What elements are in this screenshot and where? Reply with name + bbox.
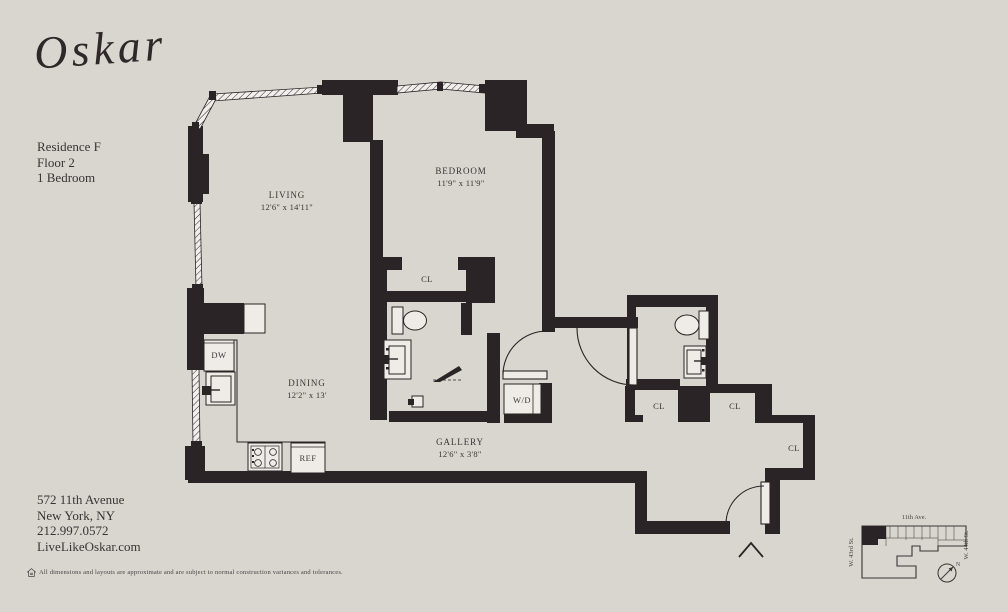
doors (433, 328, 770, 524)
keyplan-street-left-label: W. 43rd St. (848, 537, 855, 567)
washer-dryer-label: W/D (513, 395, 531, 405)
windows (192, 82, 485, 446)
gallery-label: GALLERY (436, 437, 484, 447)
kitchen-sink-icon (202, 372, 235, 405)
dishwasher-label: DW (211, 350, 226, 360)
keyplan-street-right-label: W. 44th St. (963, 530, 970, 559)
entry-chevron-icon (739, 543, 763, 557)
closet-label: CL (653, 401, 665, 411)
bedroom-dims: 11'9" x 11'9" (437, 178, 484, 188)
keyplan-avenue-label: 11th Ave. (902, 514, 927, 521)
dining-room-label: DINING (288, 378, 325, 388)
bathroom-2 (675, 311, 709, 378)
sink-icon (684, 346, 708, 378)
compass-north-label: N (956, 562, 961, 568)
floorplan-sheet: Oskar Residence F Floor 2 1 Bedroom 572 … (0, 0, 1008, 612)
closet-label: CL (421, 274, 433, 284)
sink-icon (381, 340, 411, 379)
gallery-dims: 12'6" x 3'8" (438, 449, 481, 459)
stove-icon (248, 443, 282, 471)
bedroom-label: BEDROOM (435, 166, 486, 176)
compass-icon: N (938, 562, 961, 582)
bathroom-1 (381, 307, 427, 407)
living-room-label: LIVING (269, 190, 305, 200)
toilet-icon (675, 311, 709, 339)
cabinet-box (244, 304, 265, 333)
keyplan-unit-highlight (862, 526, 886, 545)
closet-label: CL (729, 401, 741, 411)
floor-drain-icon (408, 396, 423, 407)
keyplan-unit-lines (886, 526, 966, 546)
refrigerator-label: REF (299, 453, 316, 463)
dining-room-dims: 12'2" x 13' (287, 390, 327, 400)
closet-label: CL (788, 443, 800, 453)
keyplan: 11th Ave. W. 43rd St. W. 44th St. N (848, 514, 970, 582)
toilet-icon (392, 307, 427, 334)
living-room-dims: 12'6" x 14'11" (261, 202, 313, 212)
floorplan-svg: LIVING 12'6" x 14'11" BEDROOM 11'9" x 11… (0, 0, 1008, 612)
